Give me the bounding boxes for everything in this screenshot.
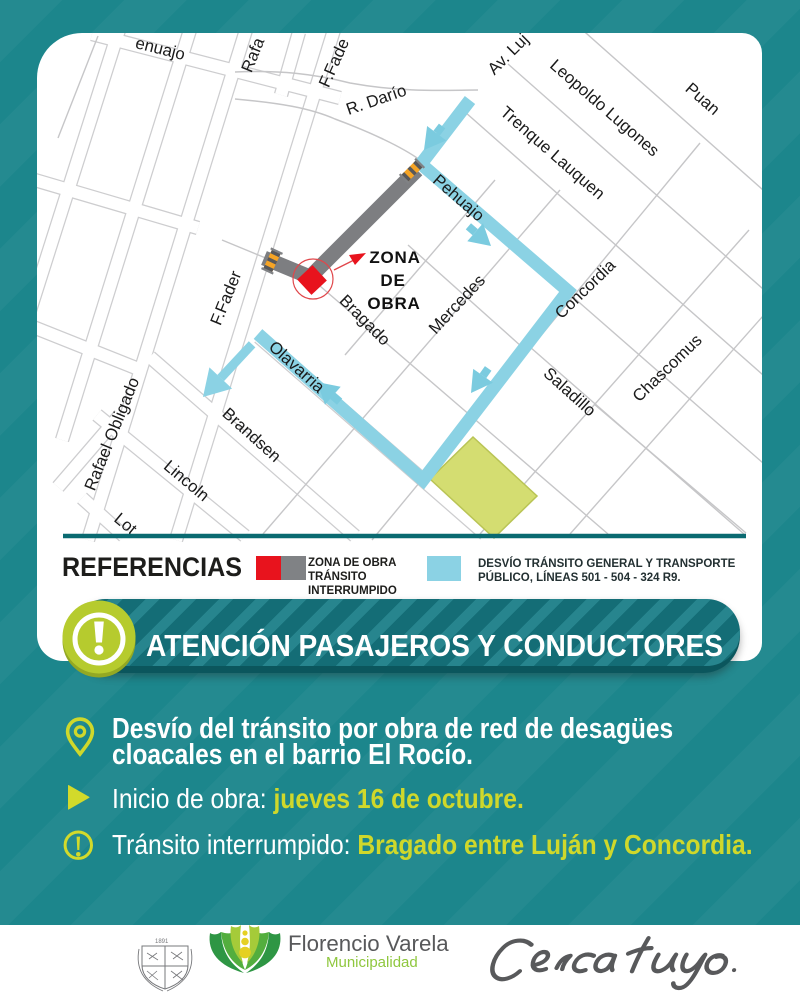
- svg-text:INTERRUMPIDO: INTERRUMPIDO: [308, 585, 397, 597]
- svg-text:TRÁNSITO: TRÁNSITO: [308, 570, 367, 583]
- svg-text:Puan: Puan: [682, 79, 724, 119]
- svg-text:Av. Luj: Av. Luj: [484, 33, 533, 78]
- svg-text:ZONA: ZONA: [369, 248, 420, 267]
- svg-text:Saladillo: Saladillo: [540, 364, 600, 421]
- svg-text:OBRA: OBRA: [367, 294, 420, 313]
- svg-text:Leopoldo Lugones: Leopoldo Lugones: [546, 55, 663, 160]
- svg-text:ZONA DE OBRA: ZONA DE OBRA: [308, 557, 396, 569]
- svg-text:Trenque Lauquen: Trenque Lauquen: [497, 102, 609, 203]
- svg-text:enuajo: enuajo: [134, 33, 188, 64]
- svg-text:REFERENCIAS: REFERENCIAS: [62, 552, 242, 582]
- svg-text:DESVÍO TRÁNSITO GENERAL Y TRAN: DESVÍO TRÁNSITO GENERAL Y TRANSPORTE: [478, 557, 736, 570]
- svg-text:DE: DE: [380, 271, 405, 290]
- svg-text:Mercedes: Mercedes: [425, 271, 489, 338]
- svg-text:Municipalidad: Municipalidad: [326, 954, 418, 971]
- svg-text:Olavarria: Olavarria: [265, 337, 329, 397]
- svg-text:1891: 1891: [155, 939, 169, 945]
- svg-text:PÚBLICO, LÍNEAS 501 - 504 - 32: PÚBLICO, LÍNEAS 501 - 504 - 324 R9.: [478, 571, 681, 584]
- svg-text:Florencio Varela: Florencio Varela: [288, 931, 449, 956]
